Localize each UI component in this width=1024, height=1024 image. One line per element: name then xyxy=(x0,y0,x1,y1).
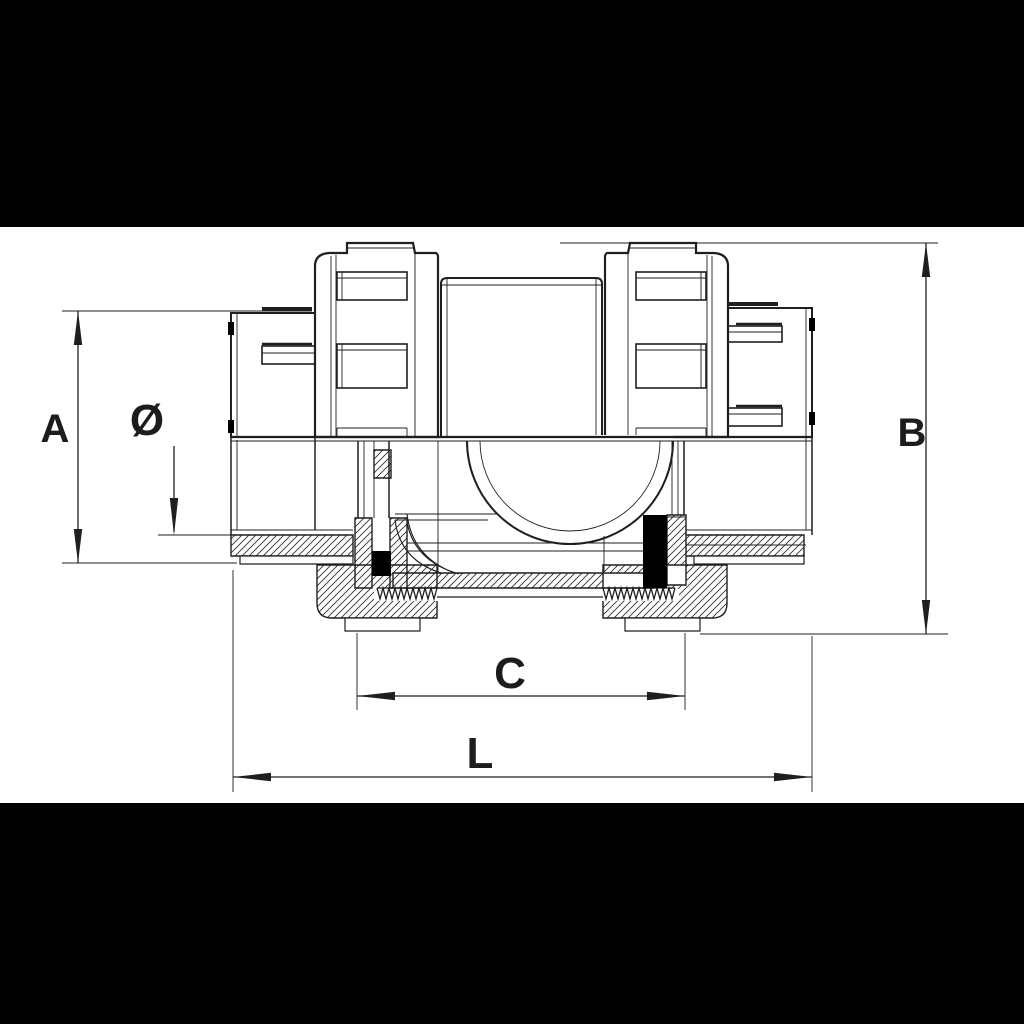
left-nut-slot-1 xyxy=(337,272,407,300)
screenshot-canvas: A Ø B C L xyxy=(0,0,1024,1024)
dim-c-label: C xyxy=(494,649,526,698)
dim-diameter-label: Ø xyxy=(130,396,164,445)
right-socket-rib-lower xyxy=(724,408,782,426)
left-socket xyxy=(231,313,315,437)
letterbox-top-bar xyxy=(0,0,1024,227)
dim-a-label: A xyxy=(41,407,70,451)
left-socket-rib xyxy=(262,346,318,364)
valve-technical-drawing: A Ø B C L xyxy=(0,0,1024,1024)
valve-center-body xyxy=(441,278,602,437)
letterbox-bottom-bar xyxy=(0,803,1024,1024)
right-nut-slot-2 xyxy=(636,344,706,388)
dim-b-label: B xyxy=(898,411,927,455)
dim-l-label: L xyxy=(467,729,494,778)
right-nut-slot-1 xyxy=(636,272,706,300)
right-socket-rib-upper xyxy=(724,326,782,342)
left-nut-slot-2 xyxy=(337,344,407,388)
